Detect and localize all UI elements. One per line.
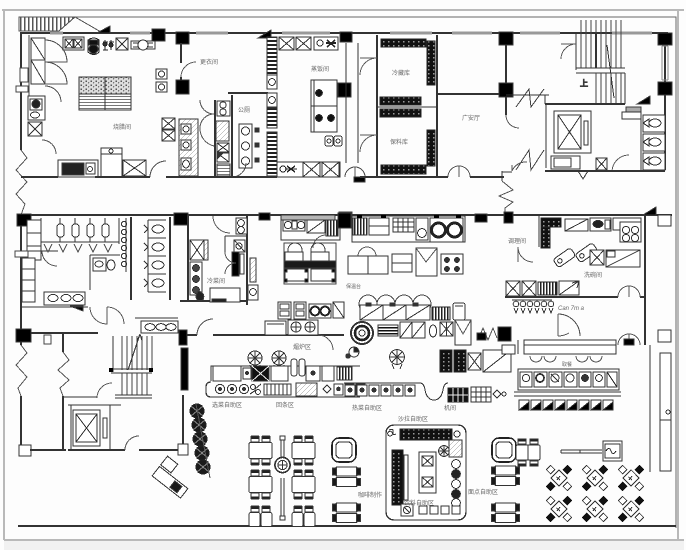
svg-text:冷菜间: 冷菜间 — [207, 277, 225, 285]
svg-text:选菜自助区: 选菜自助区 — [212, 401, 242, 409]
svg-text:Can 7m a: Can 7m a — [558, 306, 585, 312]
svg-text:热菜自助区: 热菜自助区 — [352, 404, 382, 412]
svg-text:调理间: 调理间 — [508, 237, 526, 245]
svg-text:沙拉自助区: 沙拉自助区 — [398, 415, 428, 423]
svg-text:咖啡制作: 咖啡制作 — [358, 491, 382, 499]
svg-text:回条区: 回条区 — [276, 401, 294, 409]
svg-text:冷藏库: 冷藏库 — [392, 69, 410, 77]
svg-text:面点自助区: 面点自助区 — [468, 488, 498, 496]
svg-text:保温台: 保温台 — [346, 283, 361, 290]
svg-text:蒸饭间: 蒸饭间 — [311, 65, 329, 73]
svg-text:上: 上 — [580, 79, 588, 88]
svg-text:公厕: 公厕 — [238, 107, 250, 114]
svg-text:广安厅: 广安厅 — [462, 114, 480, 122]
svg-text:取餐: 取餐 — [562, 361, 572, 368]
svg-text:饮料自助区: 饮料自助区 — [404, 499, 434, 507]
svg-text:保料库: 保料库 — [390, 138, 408, 146]
svg-text:机间: 机间 — [444, 404, 456, 412]
svg-text:洗碗间: 洗碗间 — [584, 271, 602, 279]
svg-text:煝炉区: 煝炉区 — [293, 343, 311, 351]
svg-text:烧腊间: 烧腊间 — [113, 123, 131, 131]
svg-text:更衣间: 更衣间 — [200, 58, 218, 66]
